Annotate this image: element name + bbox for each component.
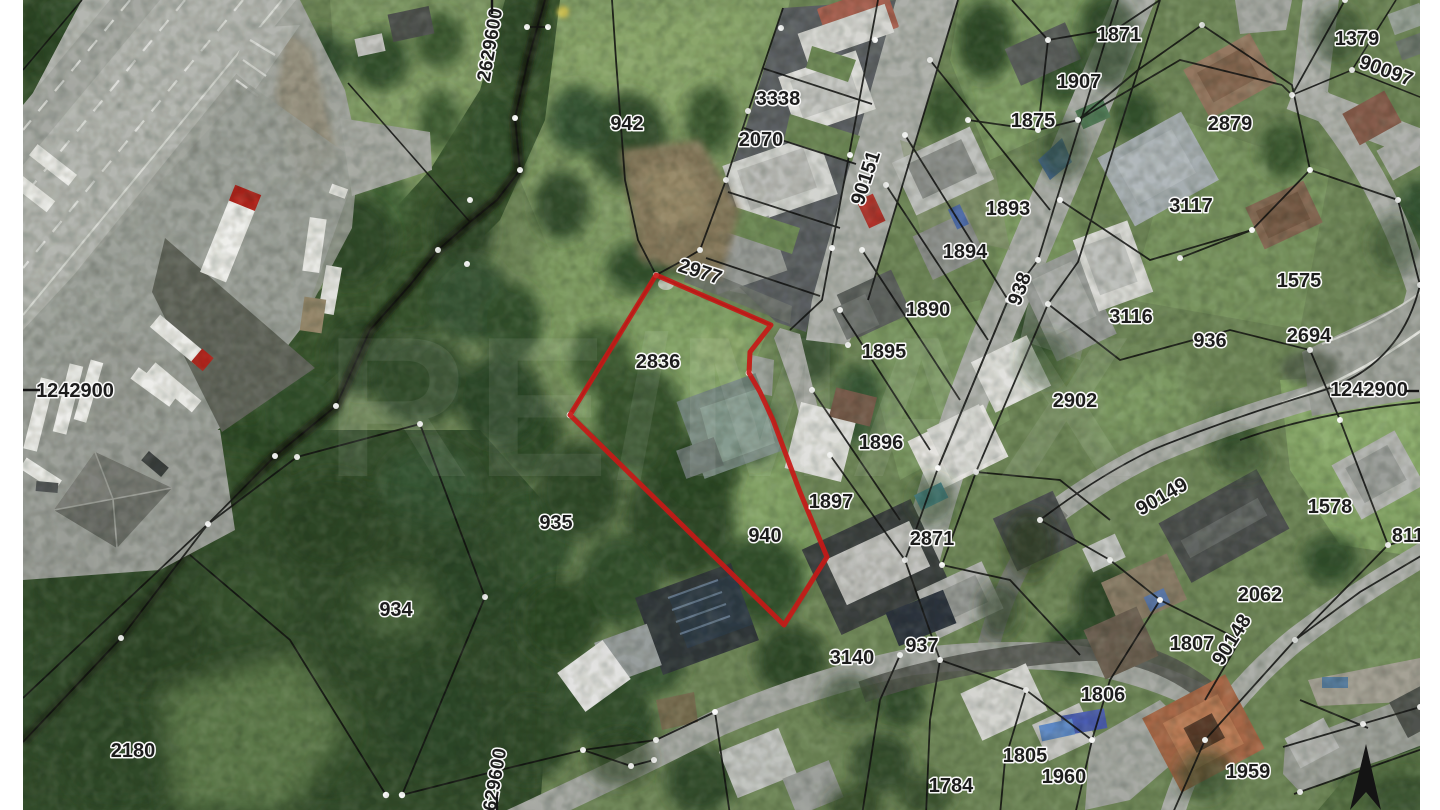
svg-text:2694: 2694 (1287, 325, 1332, 347)
svg-text:1897: 1897 (809, 491, 854, 513)
svg-text:1871: 1871 (1097, 24, 1142, 46)
svg-text:1575: 1575 (1277, 270, 1322, 292)
svg-text:2070: 2070 (739, 129, 784, 151)
svg-text:1379: 1379 (1335, 28, 1380, 50)
svg-text:935: 935 (539, 512, 572, 534)
svg-text:2062: 2062 (1238, 584, 1283, 606)
svg-text:3338: 3338 (756, 88, 801, 110)
svg-text:1894: 1894 (943, 241, 988, 263)
svg-text:1960: 1960 (1042, 766, 1087, 788)
svg-text:1895: 1895 (862, 341, 907, 363)
svg-text:1875: 1875 (1011, 110, 1056, 132)
svg-text:1907: 1907 (1057, 71, 1102, 93)
svg-text:RE/MAX: RE/MAX (325, 296, 1139, 519)
svg-text:1959: 1959 (1226, 761, 1271, 783)
svg-text:3140: 3140 (830, 647, 875, 669)
svg-text:3117: 3117 (1169, 195, 1212, 217)
svg-text:1890: 1890 (906, 299, 951, 321)
svg-text:936: 936 (1193, 330, 1226, 352)
svg-text:1242900: 1242900 (1330, 379, 1408, 401)
svg-text:1807: 1807 (1170, 633, 1215, 655)
svg-text:3116: 3116 (1109, 306, 1152, 328)
svg-text:1805: 1805 (1003, 745, 1048, 767)
svg-text:2836: 2836 (636, 351, 681, 373)
svg-text:2180: 2180 (111, 740, 156, 762)
svg-text:1806: 1806 (1081, 684, 1126, 706)
svg-text:1893: 1893 (986, 198, 1031, 220)
svg-text:1242900: 1242900 (36, 380, 114, 402)
svg-text:1896: 1896 (859, 432, 904, 454)
svg-text:934: 934 (379, 599, 413, 621)
svg-text:942: 942 (610, 113, 643, 135)
svg-text:2902: 2902 (1053, 390, 1098, 412)
svg-text:811: 811 (1392, 525, 1424, 547)
svg-text:2879: 2879 (1208, 113, 1253, 135)
svg-text:1578: 1578 (1308, 496, 1353, 518)
svg-text:2871: 2871 (910, 528, 955, 550)
svg-text:1784: 1784 (929, 775, 974, 797)
svg-text:937: 937 (905, 635, 938, 657)
svg-text:940: 940 (748, 525, 781, 547)
